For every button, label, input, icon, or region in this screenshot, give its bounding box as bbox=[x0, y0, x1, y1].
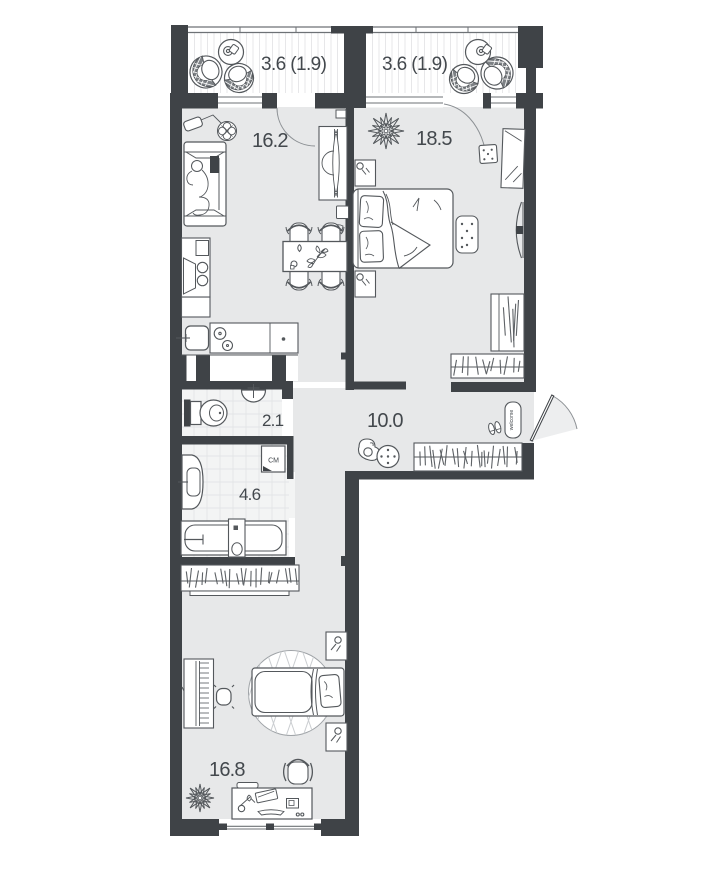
svg-text:СМ: СМ bbox=[268, 458, 279, 465]
svg-text:16.8: 16.8 bbox=[209, 759, 245, 781]
svg-text:10.0: 10.0 bbox=[367, 410, 403, 432]
svg-text:4.6: 4.6 bbox=[239, 485, 261, 504]
svg-text:16.2: 16.2 bbox=[252, 130, 288, 152]
svg-text:18.5: 18.5 bbox=[416, 128, 452, 150]
svg-text:welcome: welcome bbox=[509, 410, 515, 431]
svg-text:3.6 (1.9): 3.6 (1.9) bbox=[382, 54, 448, 75]
svg-text:2.1: 2.1 bbox=[262, 411, 284, 430]
svg-text:3.6 (1.9): 3.6 (1.9) bbox=[261, 54, 327, 75]
